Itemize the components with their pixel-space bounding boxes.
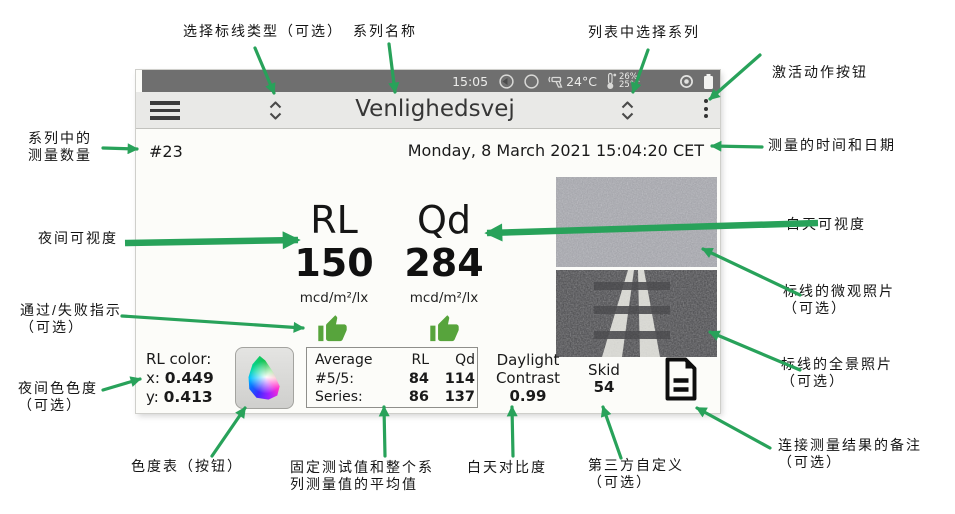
annotation-third-party: 第三方自定义 （可选） xyxy=(588,457,684,491)
gps-icon xyxy=(678,73,695,90)
measurement-count: #23 xyxy=(149,142,183,161)
skid-block: Skid 54 xyxy=(572,362,636,396)
macro-photo[interactable] xyxy=(556,177,717,267)
annotation-time-date: 测量的时间和日期 xyxy=(768,137,896,154)
annotation-night-color: 夜间色色度 （可选） xyxy=(18,380,98,414)
average-table: Average RL Qd #5/5: 84 114 Series: 86 13… xyxy=(306,347,478,408)
battery-icon xyxy=(703,73,714,90)
rl-color-y: y: 0.413 xyxy=(146,388,214,407)
annotation-day-visibility: 白天可视度 xyxy=(786,216,866,233)
measurement-datetime: Monday, 8 March 2021 15:04:20 CET xyxy=(408,141,704,160)
annotation-average: 固定测试值和整个系 列测量值的平均值 xyxy=(290,459,434,493)
toolbar: Venlighedsvej xyxy=(136,92,720,129)
avg-row-qd: 114 xyxy=(429,370,475,389)
rl-color-block: RL color: x: 0.449 y: 0.413 xyxy=(146,350,214,407)
annotation-action-button: 激活动作按钮 xyxy=(772,64,868,81)
ambient-temp-value: 25°C xyxy=(619,81,640,89)
annotation-pass-fail: 通过/失败指示 （可选） xyxy=(20,302,122,336)
qd-unit: mcd/m²/lx xyxy=(379,290,509,306)
annotated-screenshot-page: 15:05 24°C xyxy=(0,0,955,514)
annotation-chroma-button: 色度表（按钮） xyxy=(131,458,243,475)
marking-type-selector[interactable] xyxy=(268,99,283,122)
avg-header-rl: RL xyxy=(387,351,429,370)
humidity-temp-stack: 26% 25°C xyxy=(619,73,640,89)
annotation-series-count: 系列中的 测量数量 xyxy=(28,130,92,164)
series-title: Venlighedsvej xyxy=(350,96,520,122)
annotation-series-name: 系列名称 xyxy=(353,23,417,40)
avg-header-label: Average xyxy=(315,351,387,370)
action-menu-button[interactable] xyxy=(704,99,708,118)
skid-label: Skid xyxy=(572,362,636,379)
daylight-value: 0.99 xyxy=(484,387,572,405)
thermometer-icon xyxy=(605,72,617,90)
device-screen: 15:05 24°C xyxy=(136,70,720,413)
annotation-pano-photo: 标线的全景照片 （可选） xyxy=(781,356,893,390)
annotation-select-marking-type: 选择标线类型（可选） xyxy=(183,23,343,40)
ir-temp-value: 24°C xyxy=(566,74,597,89)
series-selector[interactable] xyxy=(620,99,635,122)
series-row-label: Series: xyxy=(315,388,387,407)
panorama-photo[interactable] xyxy=(556,270,717,357)
annotation-note: 连接测量结果的备注 （可选） xyxy=(778,437,922,471)
annotation-macro-photo: 标线的微观照片 （可选） xyxy=(783,283,895,317)
qd-value: 284 xyxy=(379,241,509,285)
status-bar: 15:05 24°C xyxy=(142,70,720,92)
skid-value: 54 xyxy=(572,379,636,396)
series-row-rl: 86 xyxy=(387,388,429,407)
cie-diagram-icon xyxy=(245,355,285,401)
annotation-select-series: 列表中选择系列 xyxy=(588,24,700,41)
circle-status-icon xyxy=(523,73,540,90)
daylight-label-1: Daylight xyxy=(484,351,572,369)
sync-icon xyxy=(498,73,515,90)
avg-row-rl: 84 xyxy=(387,370,429,389)
ir-temperature: 24°C xyxy=(548,74,597,89)
qd-pass-thumb-up-icon xyxy=(429,314,460,345)
status-clock: 15:05 xyxy=(452,74,488,89)
daylight-contrast-block: Daylight Contrast 0.99 xyxy=(484,351,572,405)
daylight-label-2: Contrast xyxy=(484,369,572,387)
avg-header-qd: Qd xyxy=(429,351,475,370)
menu-button[interactable] xyxy=(150,101,180,124)
qd-label: Qd xyxy=(379,198,509,242)
series-row-qd: 137 xyxy=(429,388,475,407)
annotation-night-visibility: 夜间可视度 xyxy=(38,230,118,247)
rl-color-title: RL color: xyxy=(146,350,214,369)
chromaticity-button[interactable] xyxy=(235,347,294,409)
rl-color-x: x: 0.449 xyxy=(146,369,214,388)
note-document-icon[interactable] xyxy=(663,356,699,402)
humidity-temperature: 26% 25°C xyxy=(605,72,640,90)
annotation-daylight-contrast: 白天对比度 xyxy=(467,459,547,476)
avg-row-label: #5/5: xyxy=(315,370,387,389)
ir-gun-icon xyxy=(548,74,564,89)
rl-pass-thumb-up-icon xyxy=(317,314,348,345)
